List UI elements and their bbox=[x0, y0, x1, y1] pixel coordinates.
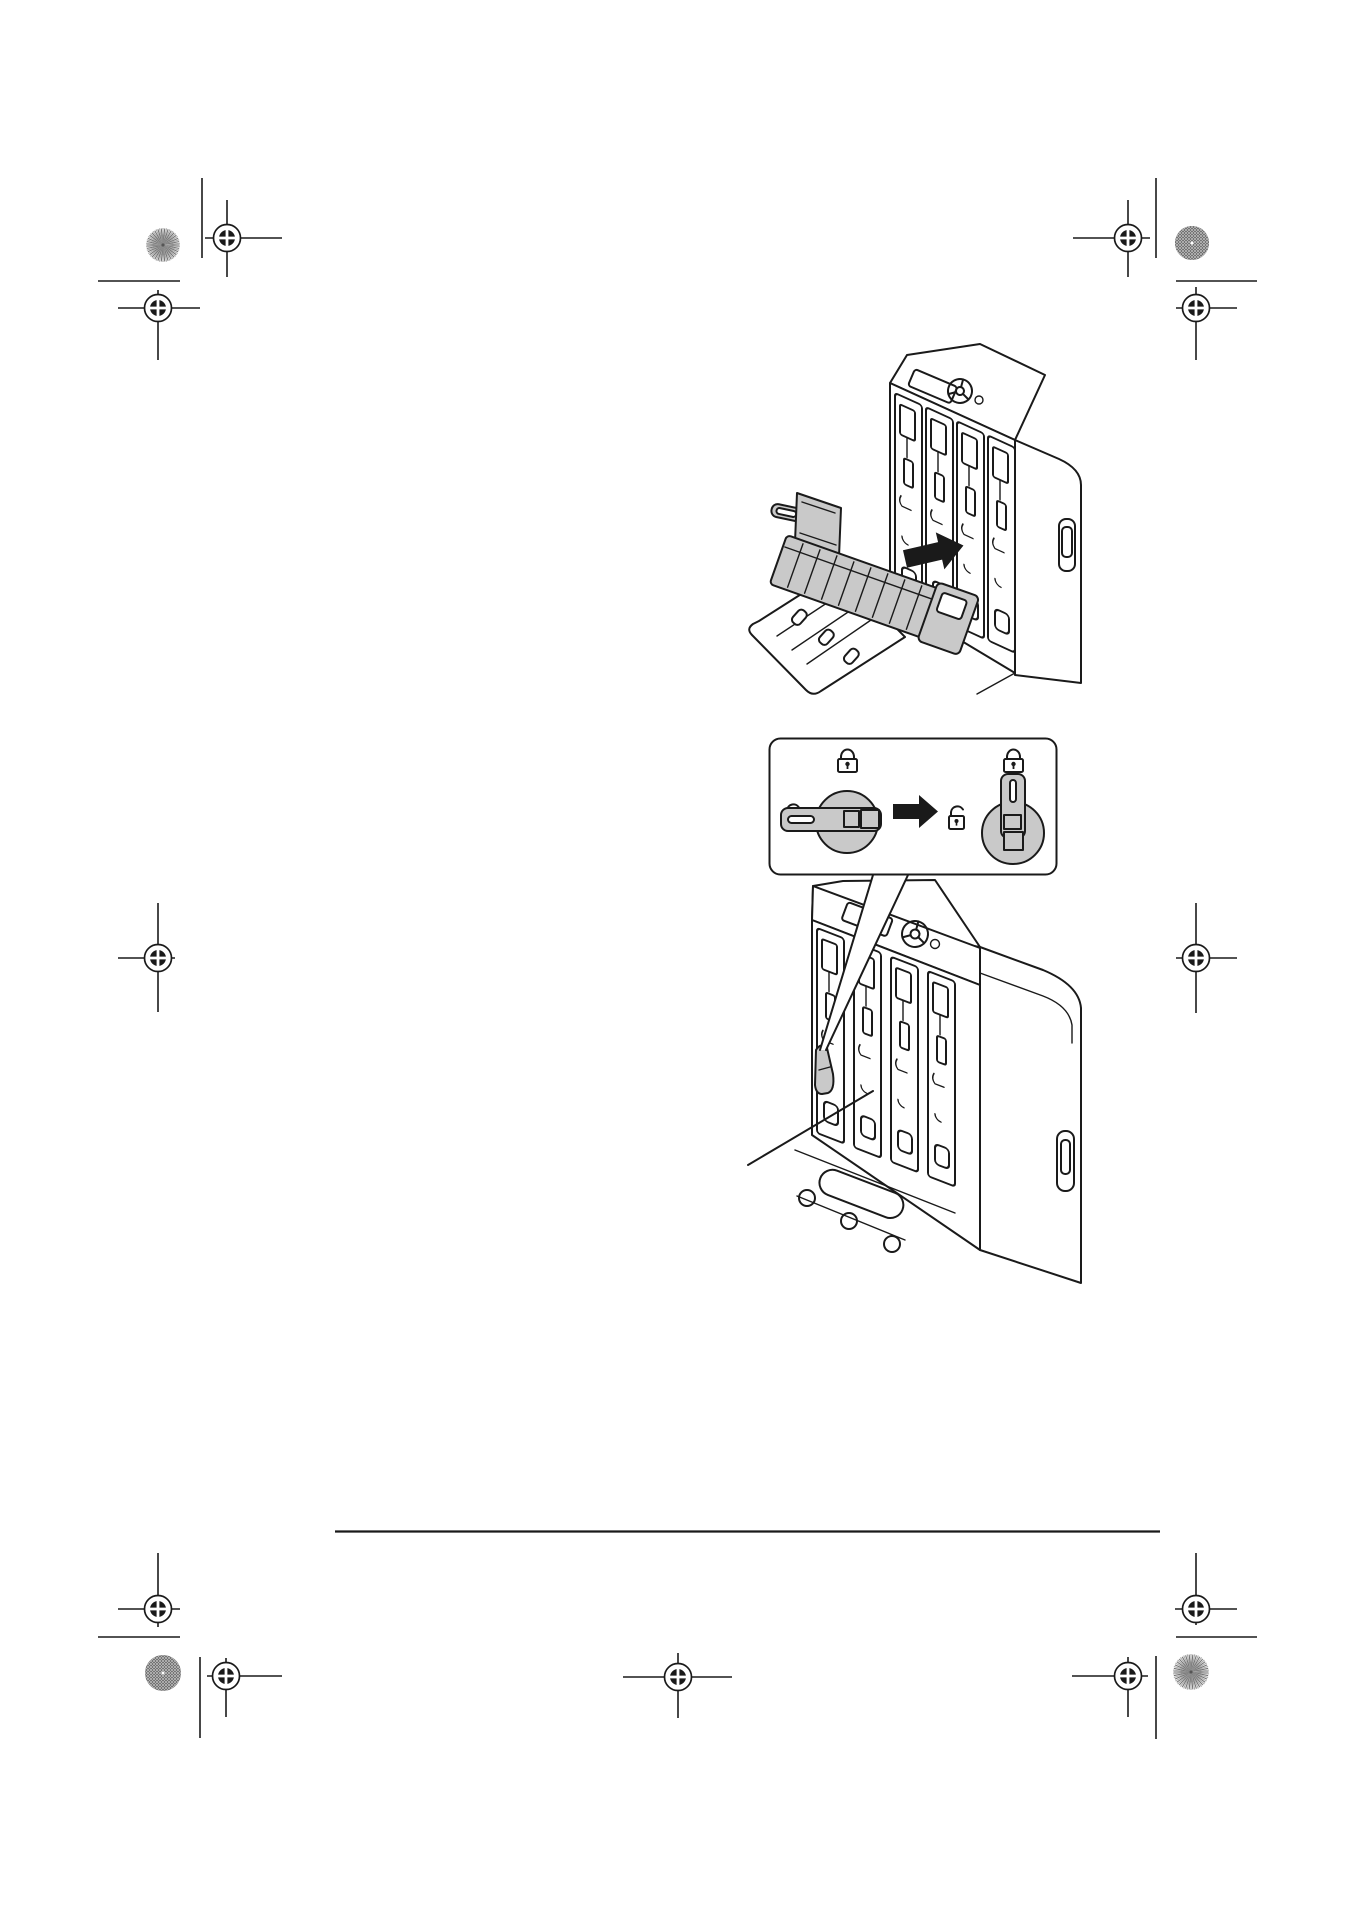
registration-mark bbox=[1073, 200, 1150, 277]
side-handle bbox=[1062, 527, 1072, 557]
printing-marks-layer bbox=[0, 0, 1355, 1917]
printer-side-panel bbox=[980, 947, 1081, 1283]
registration-mark bbox=[1176, 903, 1237, 1013]
registration-mark bbox=[118, 1553, 180, 1627]
manual-page bbox=[0, 0, 1355, 1917]
insert-waste-toner-box-illustration bbox=[745, 343, 1090, 698]
registration-mark bbox=[207, 1658, 282, 1717]
registration-mark bbox=[205, 200, 282, 277]
callout-pointer bbox=[800, 870, 920, 1060]
registration-mark bbox=[623, 1653, 732, 1718]
side-handle bbox=[1061, 1140, 1070, 1174]
lock-lever-rotation-diagram bbox=[768, 737, 1060, 878]
registration-mark bbox=[118, 903, 175, 1012]
starburst-target bbox=[146, 228, 180, 262]
crosshatch-target bbox=[1175, 192, 1209, 292]
starburst-target bbox=[1173, 1654, 1209, 1690]
registration-mark bbox=[1176, 287, 1237, 360]
rotate-lock-lever-illustration bbox=[745, 878, 1097, 1303]
registration-mark bbox=[1072, 1657, 1148, 1717]
registration-mark bbox=[1175, 1553, 1237, 1625]
crosshatch-target bbox=[145, 1619, 181, 1727]
registration-mark bbox=[118, 290, 200, 360]
